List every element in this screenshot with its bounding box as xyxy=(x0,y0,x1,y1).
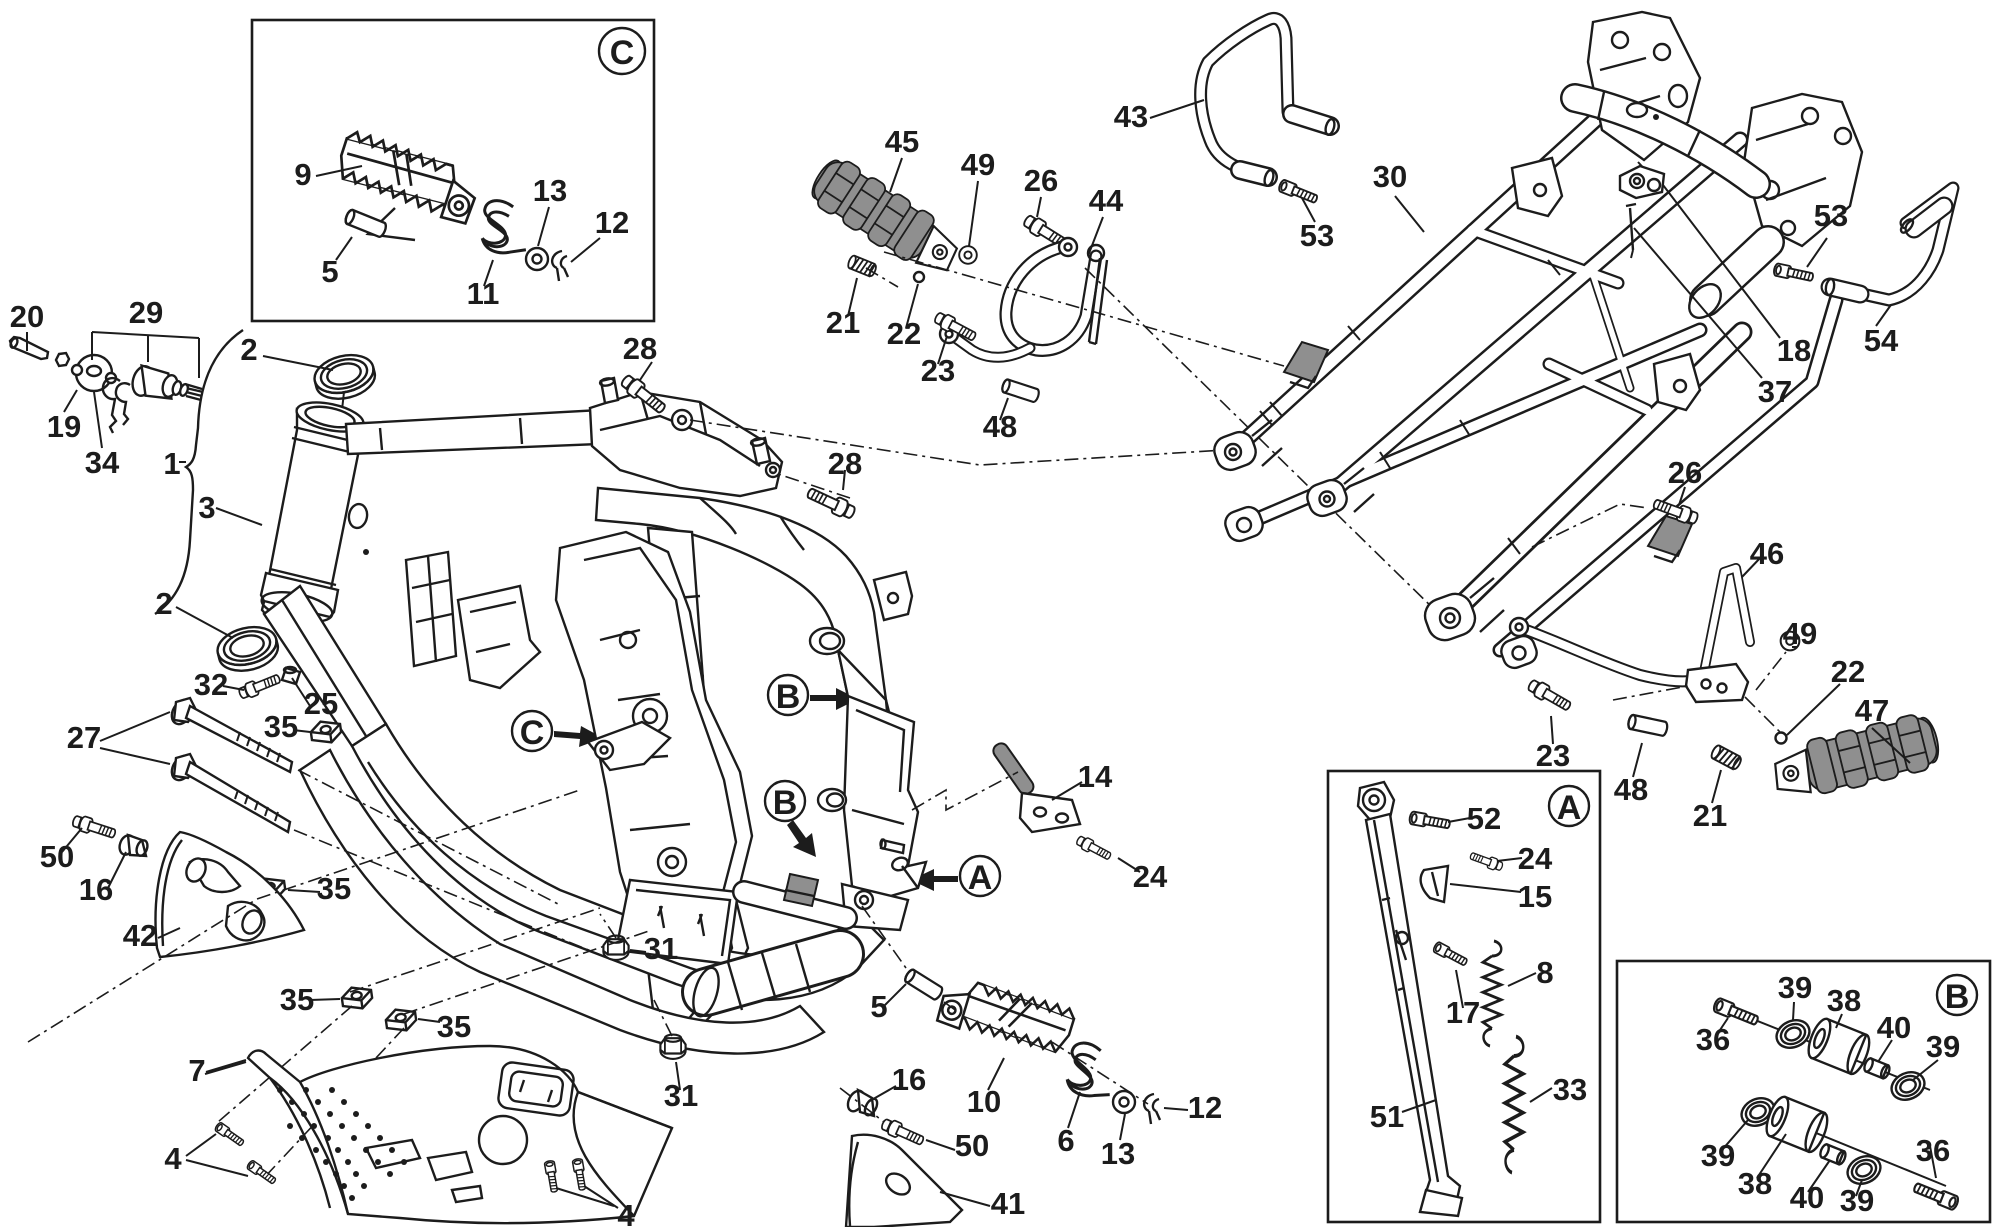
svg-text:53: 53 xyxy=(1300,218,1334,253)
svg-text:53: 53 xyxy=(1814,198,1848,233)
svg-text:C: C xyxy=(520,714,545,752)
svg-text:12: 12 xyxy=(1188,1090,1222,1125)
svg-text:47: 47 xyxy=(1855,693,1889,728)
svg-text:39: 39 xyxy=(1840,1183,1874,1218)
svg-text:14: 14 xyxy=(1078,759,1113,794)
svg-text:19: 19 xyxy=(47,409,81,444)
svg-text:3: 3 xyxy=(198,490,215,525)
svg-text:40: 40 xyxy=(1877,1010,1911,1045)
svg-text:36: 36 xyxy=(1696,1022,1730,1057)
svg-text:54: 54 xyxy=(1864,323,1899,358)
svg-text:22: 22 xyxy=(887,316,921,351)
svg-text:50: 50 xyxy=(40,839,74,874)
svg-text:39: 39 xyxy=(1778,970,1812,1005)
svg-text:16: 16 xyxy=(892,1062,926,1097)
svg-text:5: 5 xyxy=(321,254,338,289)
svg-text:B: B xyxy=(1945,978,1970,1016)
svg-text:32: 32 xyxy=(194,667,228,702)
svg-text:17: 17 xyxy=(1446,995,1480,1030)
svg-text:48: 48 xyxy=(983,409,1017,444)
svg-text:48: 48 xyxy=(1614,772,1648,807)
svg-text:10: 10 xyxy=(967,1084,1001,1119)
svg-text:12: 12 xyxy=(595,205,629,240)
svg-text:20: 20 xyxy=(10,299,44,334)
svg-text:50: 50 xyxy=(955,1128,989,1163)
svg-text:24: 24 xyxy=(1518,841,1553,876)
svg-text:4: 4 xyxy=(164,1141,182,1176)
svg-text:34: 34 xyxy=(85,445,120,480)
svg-text:31: 31 xyxy=(644,931,678,966)
svg-text:21: 21 xyxy=(1693,798,1727,833)
svg-text:39: 39 xyxy=(1926,1029,1960,1064)
svg-text:4: 4 xyxy=(617,1198,635,1227)
svg-text:35: 35 xyxy=(437,1009,471,1044)
svg-text:2: 2 xyxy=(240,332,257,367)
svg-text:5: 5 xyxy=(870,989,887,1024)
svg-text:28: 28 xyxy=(623,331,657,366)
svg-text:21: 21 xyxy=(826,305,860,340)
svg-text:B: B xyxy=(773,784,798,822)
svg-text:33: 33 xyxy=(1553,1072,1587,1107)
svg-text:11: 11 xyxy=(467,276,500,311)
svg-text:35: 35 xyxy=(264,709,298,744)
svg-text:26: 26 xyxy=(1024,163,1058,198)
svg-text:31: 31 xyxy=(664,1078,698,1113)
svg-text:43: 43 xyxy=(1114,99,1148,134)
svg-text:24: 24 xyxy=(1133,859,1168,894)
svg-text:2: 2 xyxy=(155,586,172,621)
svg-text:52: 52 xyxy=(1467,801,1501,836)
svg-text:49: 49 xyxy=(961,147,995,182)
svg-text:16: 16 xyxy=(79,872,113,907)
svg-text:26: 26 xyxy=(1668,455,1702,490)
svg-text:28: 28 xyxy=(828,446,862,481)
svg-text:36: 36 xyxy=(1916,1133,1950,1168)
svg-text:A: A xyxy=(1557,789,1582,827)
svg-text:37: 37 xyxy=(1758,374,1792,409)
svg-text:29: 29 xyxy=(129,295,163,330)
svg-text:49: 49 xyxy=(1783,616,1817,651)
svg-text:13: 13 xyxy=(1101,1136,1135,1171)
svg-text:18: 18 xyxy=(1777,333,1811,368)
svg-text:44: 44 xyxy=(1089,183,1124,218)
svg-text:B: B xyxy=(776,678,801,716)
svg-text:38: 38 xyxy=(1827,983,1861,1018)
svg-text:1: 1 xyxy=(163,446,180,481)
svg-text:8: 8 xyxy=(1536,955,1553,990)
svg-text:27: 27 xyxy=(67,720,101,755)
svg-text:15: 15 xyxy=(1518,879,1552,914)
svg-text:42: 42 xyxy=(123,918,157,953)
svg-text:30: 30 xyxy=(1373,159,1407,194)
svg-text:35: 35 xyxy=(280,982,314,1017)
svg-text:41: 41 xyxy=(991,1186,1025,1221)
svg-text:23: 23 xyxy=(1536,738,1570,773)
svg-text:40: 40 xyxy=(1790,1180,1824,1215)
svg-text:22: 22 xyxy=(1831,654,1865,689)
svg-text:A: A xyxy=(968,859,993,897)
svg-text:7: 7 xyxy=(188,1053,205,1088)
svg-text:25: 25 xyxy=(304,686,338,721)
svg-text:39: 39 xyxy=(1701,1138,1735,1173)
svg-text:9: 9 xyxy=(294,157,311,192)
svg-text:35: 35 xyxy=(317,871,351,906)
svg-text:13: 13 xyxy=(533,173,567,208)
svg-text:C: C xyxy=(610,34,635,72)
svg-text:45: 45 xyxy=(885,124,919,159)
svg-text:6: 6 xyxy=(1057,1123,1074,1158)
svg-text:23: 23 xyxy=(921,353,955,388)
svg-text:51: 51 xyxy=(1370,1099,1404,1134)
svg-text:46: 46 xyxy=(1750,536,1784,571)
svg-text:38: 38 xyxy=(1738,1166,1772,1201)
